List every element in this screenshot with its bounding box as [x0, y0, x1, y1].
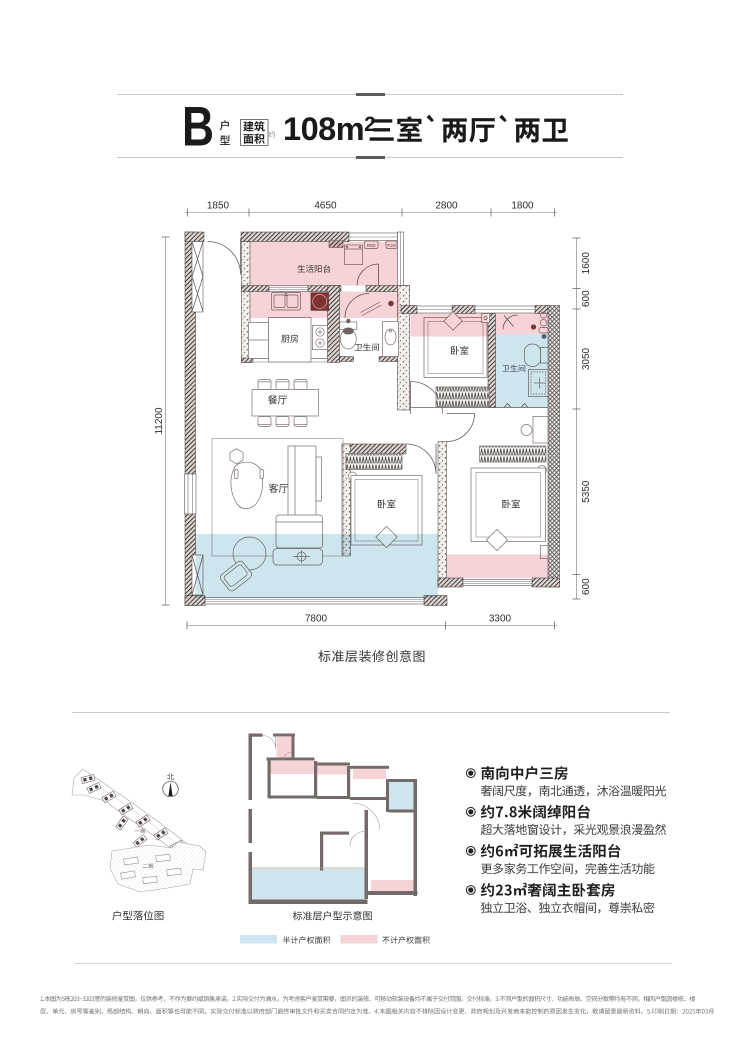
svg-text:108m2: 108m2	[283, 111, 375, 147]
svg-text:4650: 4650	[314, 201, 337, 212]
svg-text:5350: 5350	[581, 480, 592, 503]
svg-text:1800: 1800	[511, 201, 534, 212]
svg-text:600: 600	[581, 578, 592, 595]
svg-text:11200: 11200	[154, 407, 165, 435]
svg-text:1600: 1600	[581, 252, 592, 275]
svg-text:3050: 3050	[581, 347, 592, 370]
svg-text:B: B	[182, 96, 214, 158]
svg-text:3300: 3300	[489, 614, 512, 625]
svg-text:1850: 1850	[207, 201, 230, 212]
svg-text:2800: 2800	[435, 201, 458, 212]
svg-text:600: 600	[581, 290, 592, 307]
svg-text:7800: 7800	[305, 614, 328, 625]
